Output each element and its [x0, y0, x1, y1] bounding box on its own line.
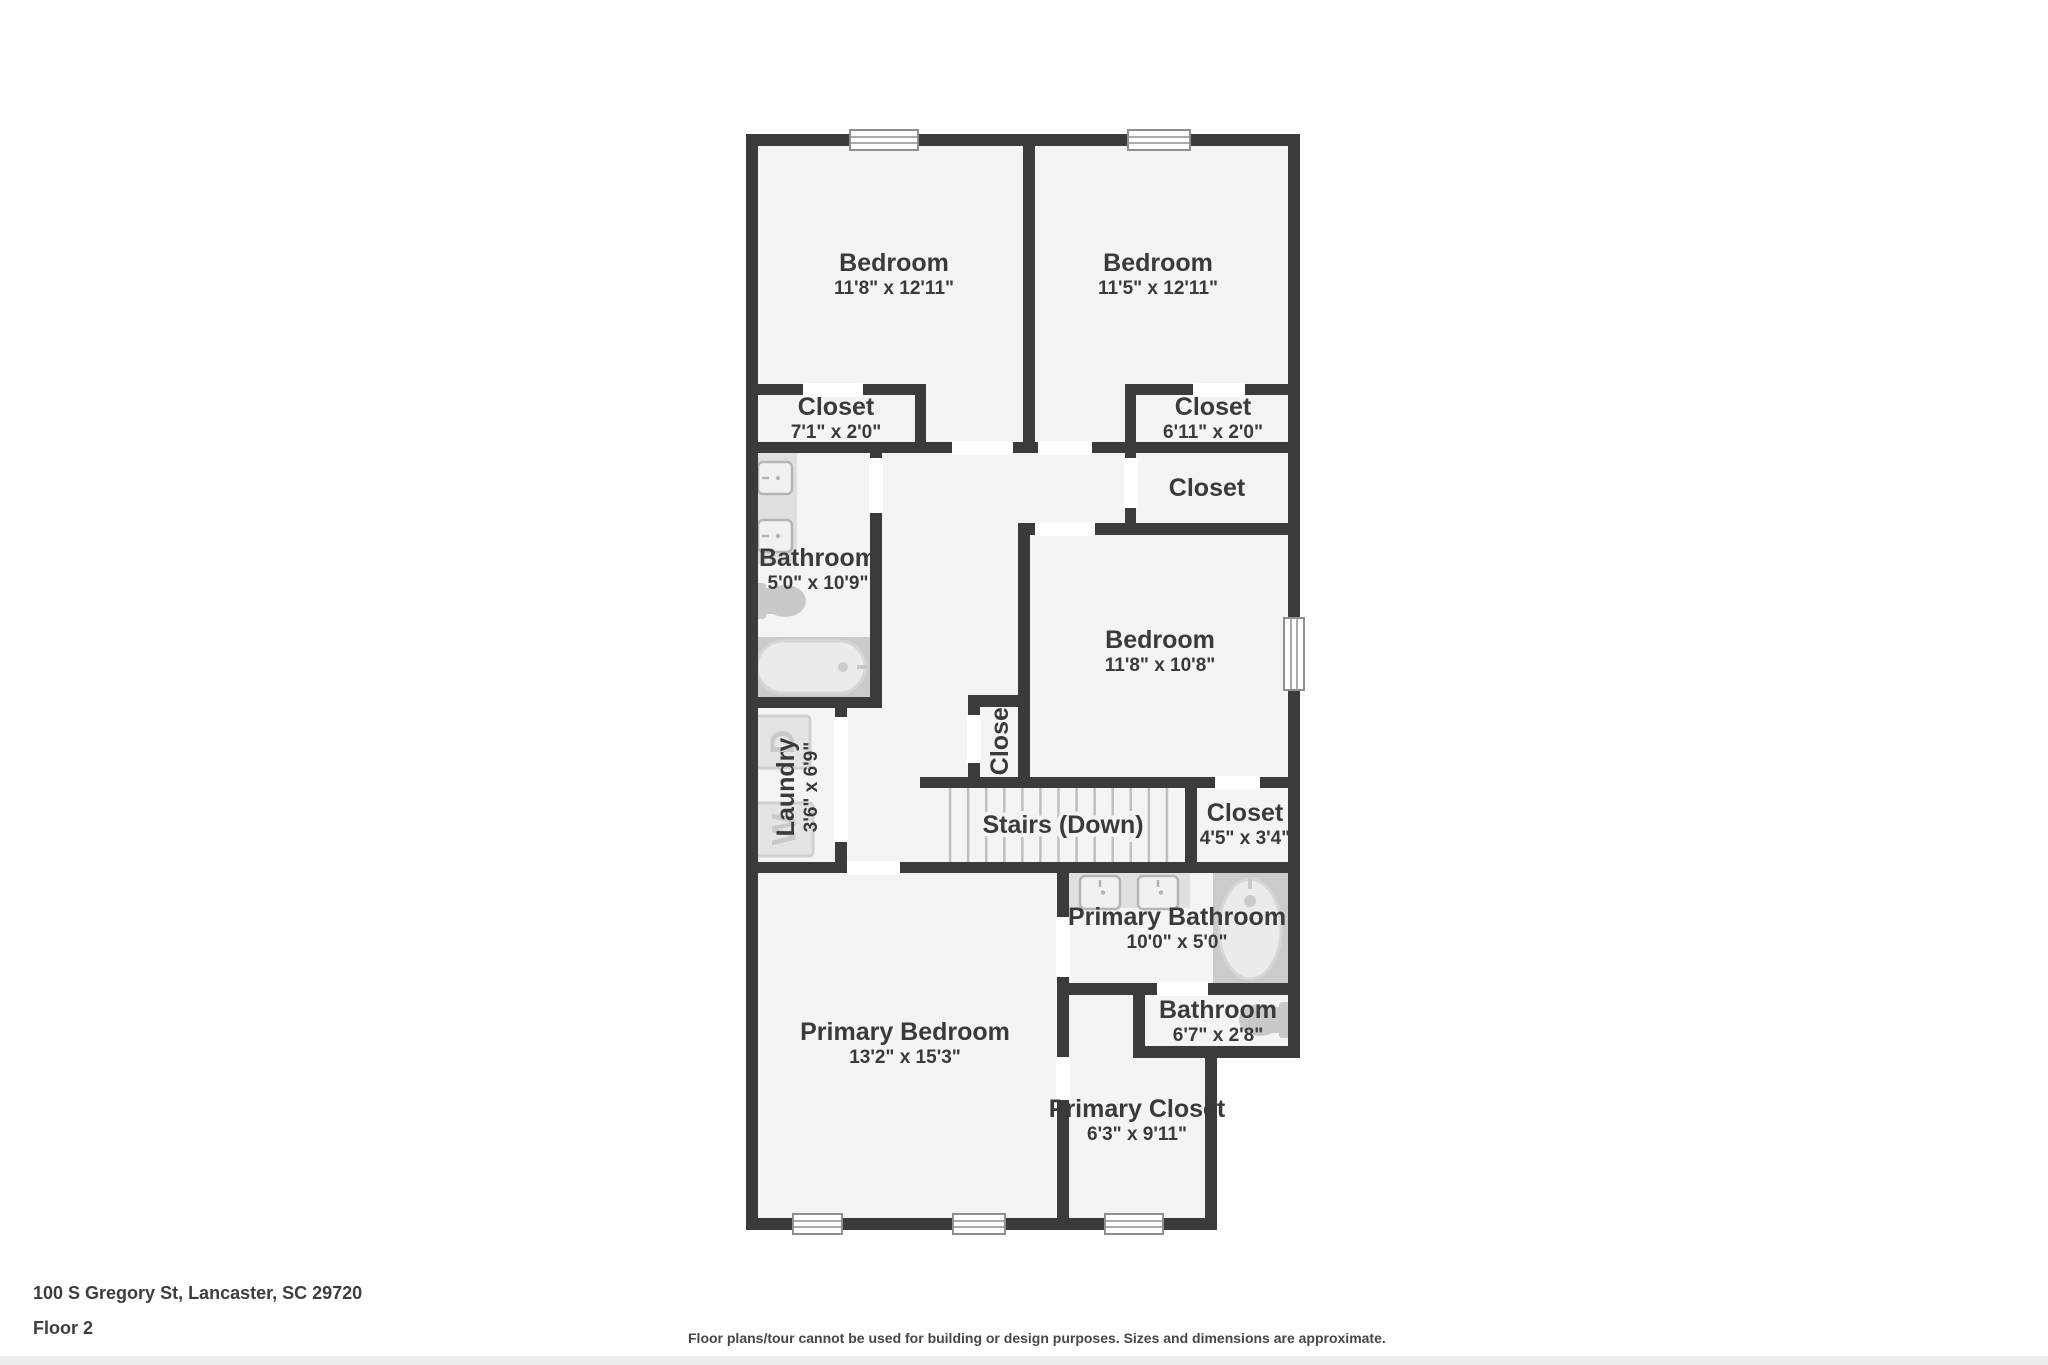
door-opening	[847, 861, 900, 875]
window-frame	[850, 130, 918, 150]
room-dimensions: 5'0" x 10'9"	[767, 573, 868, 594]
room-name: Bedroom	[839, 249, 949, 277]
room-label: Bedroom11'8" x 12'11"	[834, 249, 954, 299]
room-name: Closet	[798, 393, 875, 421]
window-frame	[1128, 130, 1190, 150]
room-dimensions: 4'5" x 3'4"	[1200, 828, 1290, 849]
wall	[746, 862, 1300, 873]
door-opening	[967, 715, 981, 763]
room-label: Bathroom5'0" x 10'9"	[759, 544, 877, 594]
room-dimensions: 11'8" x 10'8"	[1105, 655, 1216, 676]
window	[953, 1214, 1005, 1234]
room-label: Stairs (Down)	[982, 811, 1143, 839]
wall	[1205, 1046, 1217, 1230]
window	[1128, 130, 1190, 150]
room-dimensions: 3'6" x 6'9"	[801, 742, 822, 832]
room-label: Laundry3'6" x 6'9"	[772, 738, 822, 837]
room-label: Closet7'1" x 2'0"	[791, 393, 881, 443]
room-name: Closet	[1169, 474, 1246, 502]
sink-drain	[776, 534, 780, 538]
window	[1105, 1214, 1163, 1234]
window-frame	[793, 1214, 842, 1234]
room-label: Bedroom11'5" x 12'11"	[1098, 249, 1218, 299]
room-dimensions: 6'3" x 9'11"	[1087, 1124, 1187, 1145]
wall	[1288, 134, 1300, 1058]
room-name: Laundry	[772, 738, 800, 837]
room-dimensions: 13'2" x 15'3"	[849, 1047, 961, 1068]
room-label: Bedroom11'8" x 10'8"	[1105, 626, 1216, 676]
sink-drain	[776, 476, 780, 480]
room-name: Stairs (Down)	[982, 811, 1143, 839]
room-name: Primary Closet	[1049, 1095, 1226, 1123]
room-dimensions: 7'1" x 2'0"	[791, 422, 881, 443]
room-name: Primary Bathroom	[1068, 903, 1286, 931]
room-name: Primary Bedroom	[800, 1018, 1010, 1046]
room-dimensions: 11'5" x 12'11"	[1098, 278, 1218, 299]
room-label: Closet6'11" x 2'0"	[1163, 393, 1263, 443]
room-label: Closet	[986, 698, 1014, 775]
room-dimensions: 10'0" x 5'0"	[1126, 932, 1227, 953]
sink-drain	[1101, 890, 1105, 894]
wall	[746, 697, 882, 708]
room-dimensions: 6'11" x 2'0"	[1163, 422, 1263, 443]
property-address: 100 S Gregory St, Lancaster, SC 29720	[33, 1283, 362, 1304]
window-frame	[1105, 1214, 1163, 1234]
door-opening	[1038, 441, 1092, 455]
disclaimer-text: Floor plans/tour cannot be used for buil…	[688, 1330, 1386, 1346]
floor-plan-page: DWBedroom11'8" x 12'11"Bedroom11'5" x 12…	[0, 0, 2048, 1365]
room-name: Bathroom	[1159, 996, 1277, 1024]
room-dimensions: 11'8" x 12'11"	[834, 278, 954, 299]
door-opening	[869, 458, 883, 513]
room-dimensions: 6'7" x 2'8"	[1173, 1025, 1263, 1046]
window	[1284, 618, 1304, 690]
sink-icon	[758, 462, 792, 494]
room-label: Closet4'5" x 3'4"	[1200, 799, 1290, 849]
door-opening	[1035, 522, 1095, 536]
tub-drain	[838, 662, 848, 672]
floor-label: Floor 2	[33, 1318, 93, 1339]
room-name: Closet	[1207, 799, 1284, 827]
door-opening	[1056, 1057, 1070, 1100]
bathtub-icon	[753, 637, 877, 697]
wall	[746, 134, 758, 1230]
door-opening	[952, 441, 1013, 455]
room-label: Closet	[1169, 474, 1246, 502]
wall	[915, 384, 926, 453]
room-name: Bedroom	[1103, 249, 1213, 277]
door-opening	[834, 717, 848, 842]
room-name: Closet	[1175, 393, 1252, 421]
door-opening	[1124, 458, 1138, 508]
sink-drain	[1159, 890, 1163, 894]
floor-plan-svg: DWBedroom11'8" x 12'11"Bedroom11'5" x 12…	[0, 0, 2048, 1365]
door-opening	[1157, 982, 1208, 996]
room-label: Bathroom6'7" x 2'8"	[1159, 996, 1277, 1046]
window-frame	[1284, 618, 1304, 690]
door-opening	[1215, 776, 1260, 790]
window	[850, 130, 918, 150]
room-name: Bedroom	[1105, 626, 1215, 654]
wall	[1185, 777, 1197, 873]
wall	[1023, 134, 1035, 453]
wall	[1018, 523, 1030, 788]
tub-basin	[757, 641, 865, 693]
bottom-edge-strip	[0, 1356, 2048, 1365]
wall	[1133, 983, 1145, 1058]
window	[793, 1214, 842, 1234]
window-frame	[953, 1214, 1005, 1234]
room-name: Bathroom	[759, 544, 877, 572]
room-name: Closet	[986, 698, 1014, 775]
